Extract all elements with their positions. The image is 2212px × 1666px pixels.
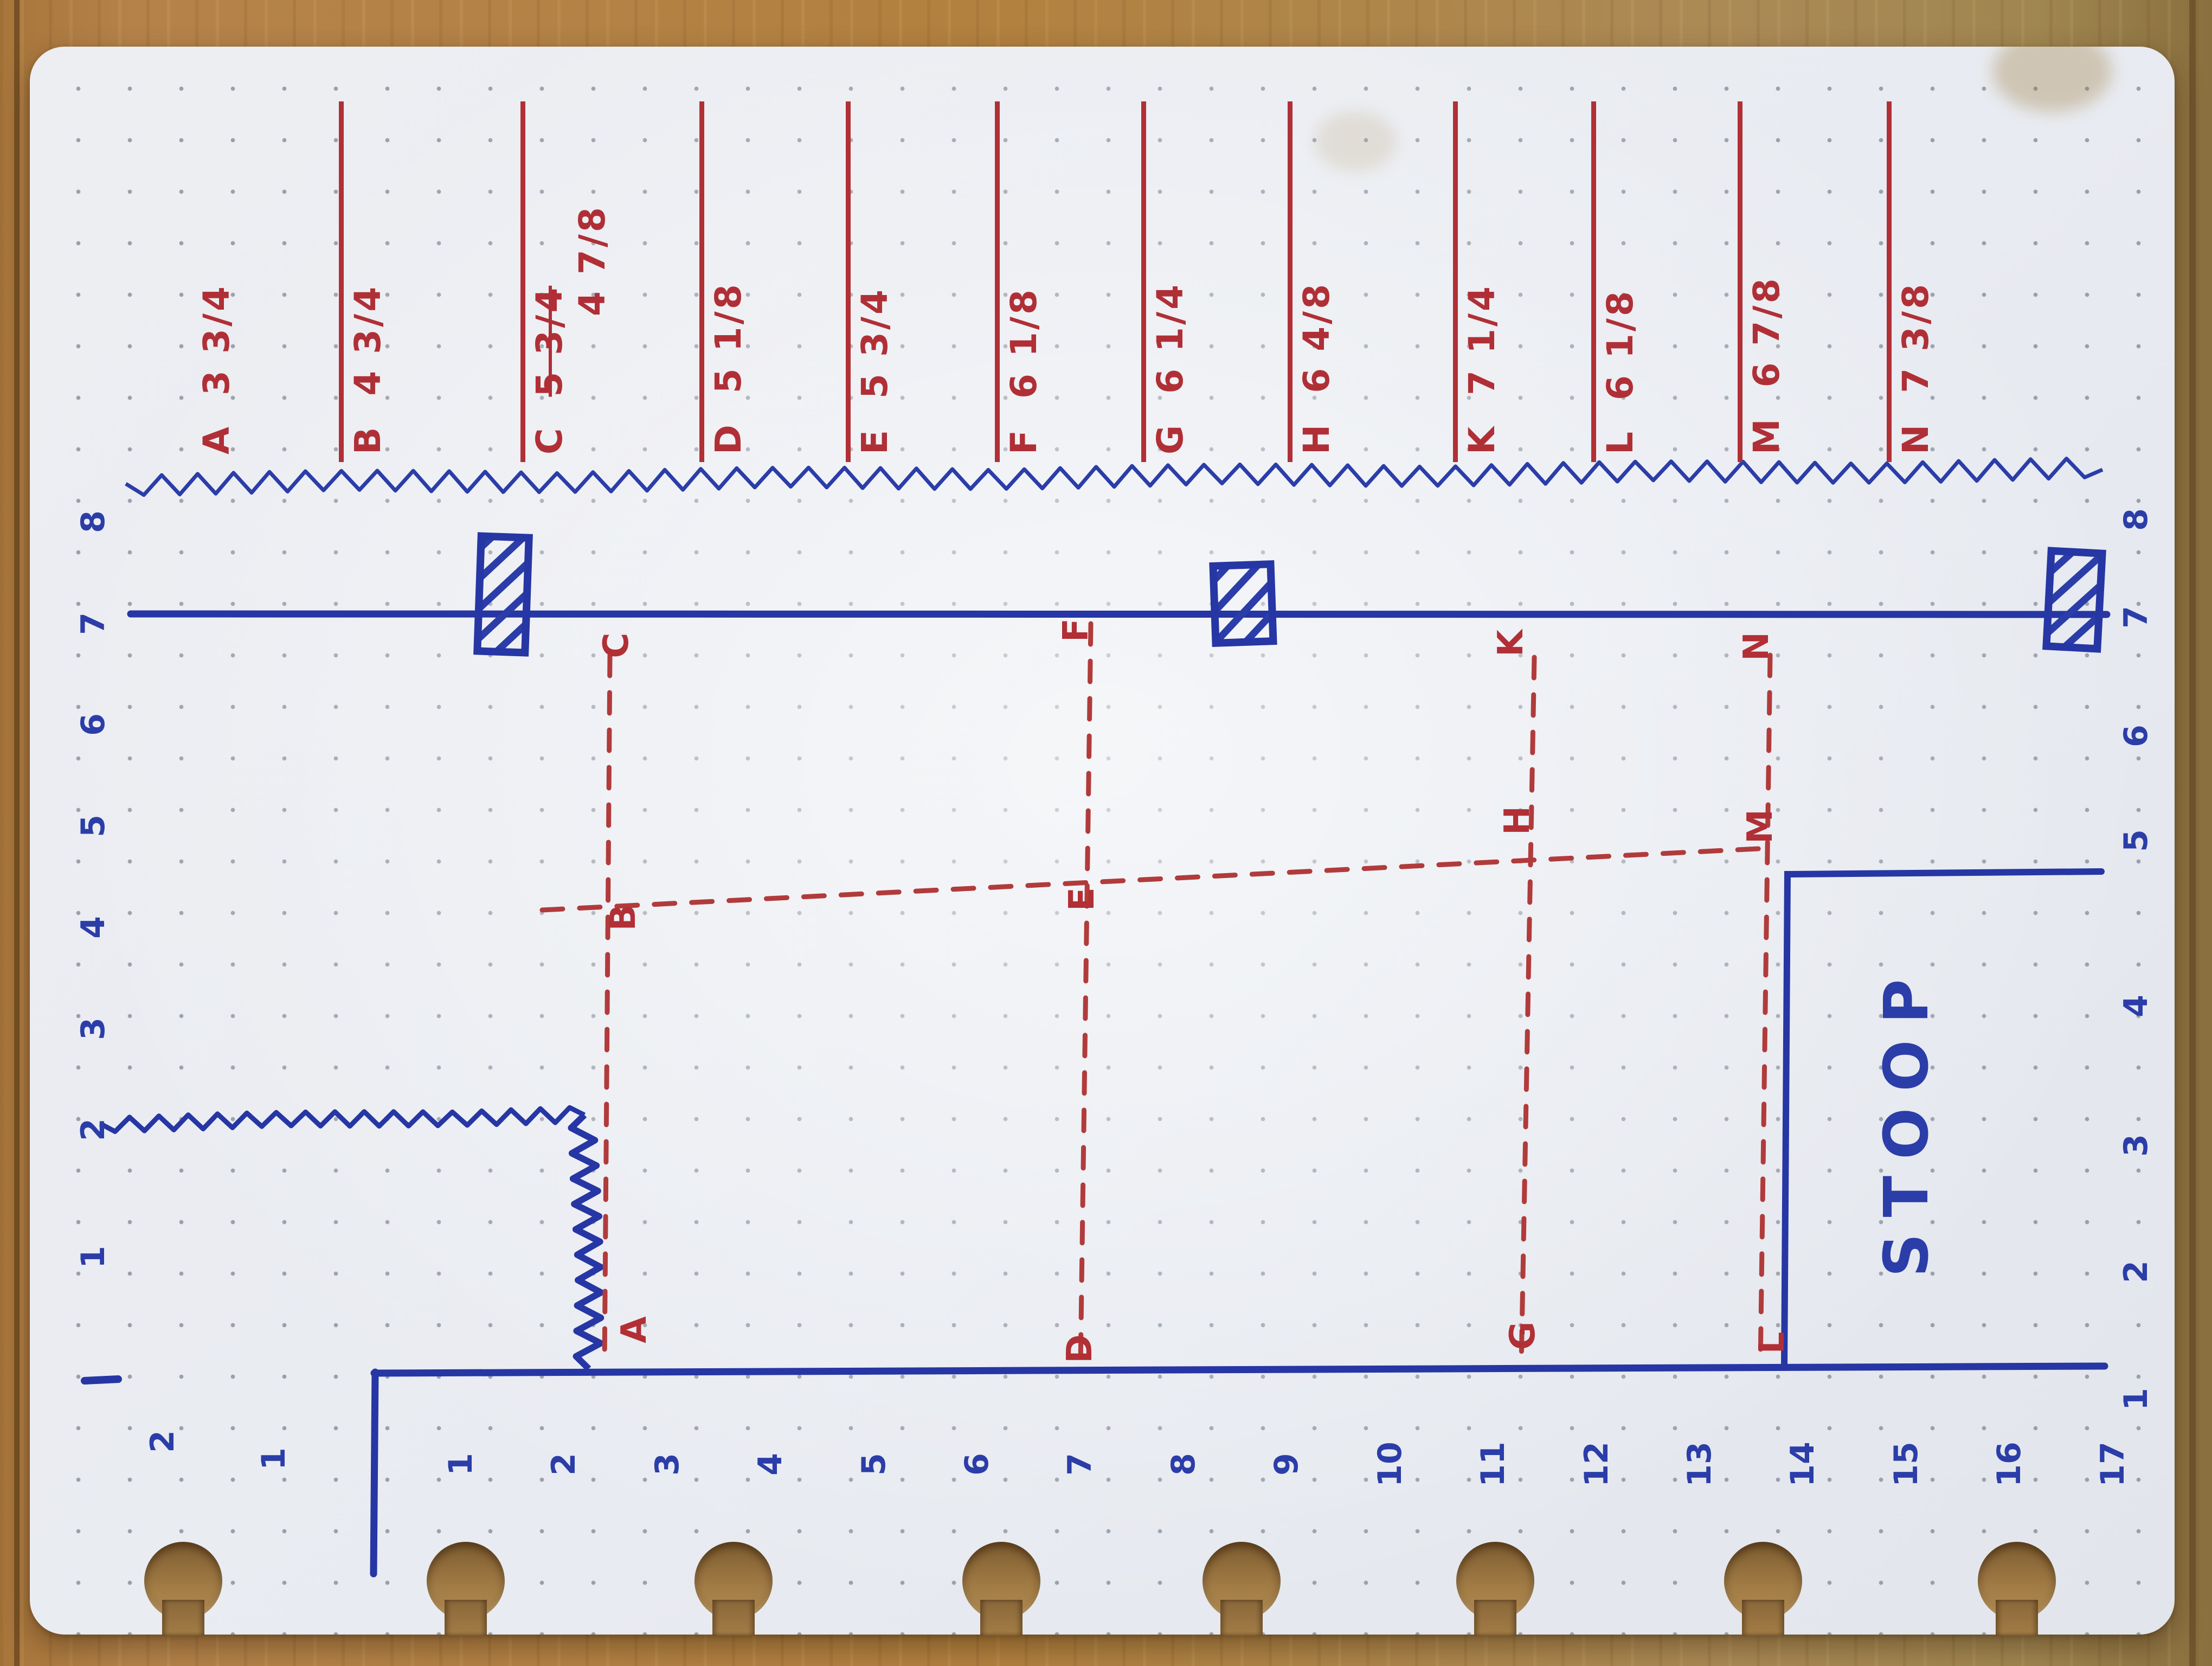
bottom-scale-6: 6 bbox=[951, 1438, 1003, 1490]
punch-slot-neck bbox=[445, 1600, 487, 1636]
bottom-scale-14: 14 bbox=[1777, 1438, 1829, 1490]
bottom-scale-2: 2 bbox=[538, 1438, 590, 1490]
measurement-F: F 6 1/8 bbox=[995, 101, 1056, 462]
left-scale-1: 1 bbox=[67, 1231, 119, 1283]
post-marker-2 bbox=[1213, 564, 1274, 643]
measurement-L: L 6 1/8 bbox=[1591, 101, 1652, 462]
bottom-scale-1: 1 bbox=[435, 1438, 487, 1490]
left-tick-mark bbox=[85, 1379, 118, 1381]
divider-squiggle-line bbox=[126, 459, 2102, 495]
bottom-scale-5: 5 bbox=[848, 1438, 900, 1490]
point-label-G: G bbox=[1500, 1313, 1546, 1359]
measurement-A: A 3 3/4 bbox=[192, 101, 253, 462]
punch-slot-neck bbox=[162, 1600, 204, 1636]
point-label-A: A bbox=[612, 1307, 657, 1353]
dashed-line-A-C bbox=[605, 655, 610, 1364]
stoop-label: STOOP bbox=[1872, 965, 1939, 1277]
step-squiggle-horizontal bbox=[100, 1107, 584, 1131]
dashed-line-G-K bbox=[1521, 657, 1534, 1364]
left-scale-3: 3 bbox=[67, 1003, 119, 1055]
point-label-K: K bbox=[1488, 620, 1534, 666]
right-scale-2: 2 bbox=[2110, 1246, 2162, 1298]
point-label-B: B bbox=[601, 895, 646, 940]
punch-slot-neck bbox=[980, 1600, 1023, 1636]
point-label-L: L bbox=[1750, 1320, 1795, 1366]
dashed-line-L-N bbox=[1760, 655, 1770, 1364]
bottom-wall-corner-stub bbox=[374, 1372, 375, 1574]
measurement-N: N 7 3/8 bbox=[1887, 101, 1947, 462]
bottom-scale-3: 3 bbox=[641, 1438, 693, 1490]
bottom-scale-13: 13 bbox=[1674, 1438, 1726, 1490]
left-scale-8: 8 bbox=[67, 496, 119, 548]
point-label-F: F bbox=[1053, 607, 1099, 653]
measurement-C: C 5 3/44 7/8 bbox=[520, 101, 612, 462]
photo-of-sketch: A 3 3/4 B 4 3/4 C 5 3/44 7/8 D 5 1/8 E 5… bbox=[0, 0, 2212, 1666]
point-label-D: D bbox=[1057, 1326, 1103, 1372]
top-wall-line bbox=[131, 614, 2107, 614]
dashed-line-D-F bbox=[1081, 624, 1091, 1364]
left-scale-2: 2 bbox=[67, 1104, 119, 1156]
measurement-B: B 4 3/4 bbox=[339, 101, 400, 462]
left-scale-5: 5 bbox=[67, 800, 119, 852]
right-scale-4: 4 bbox=[2110, 980, 2162, 1032]
bottom-wall-line bbox=[374, 1366, 2105, 1373]
measurement-E: E 5 3/4 bbox=[846, 101, 906, 462]
bottom-scale-15: 15 bbox=[1880, 1438, 1932, 1490]
bottom-scale-4: 4 bbox=[744, 1438, 796, 1490]
bottom-scale-12: 12 bbox=[1571, 1438, 1623, 1490]
right-scale-5: 5 bbox=[2110, 815, 2162, 867]
measurement-D: D 5 1/8 bbox=[699, 101, 760, 462]
post-marker-1 bbox=[477, 536, 529, 653]
punch-slot-neck bbox=[1996, 1600, 2038, 1636]
left-scale-6: 6 bbox=[67, 699, 119, 751]
bottom-scale-10: 10 bbox=[1364, 1438, 1416, 1490]
measurement-K: K 7 1/4 bbox=[1453, 101, 1514, 462]
step-squiggle-vertical bbox=[571, 1115, 601, 1369]
right-scale-1: 1 bbox=[2110, 1373, 2162, 1425]
punch-slot-neck bbox=[1742, 1600, 1784, 1636]
point-label-H: H bbox=[1495, 798, 1540, 843]
point-label-N: N bbox=[1734, 624, 1779, 669]
bottom-scale-8: 8 bbox=[1158, 1438, 1210, 1490]
bottom-left-extra-1: 1 bbox=[248, 1433, 300, 1485]
bottom-left-extra-2: 2 bbox=[137, 1415, 189, 1468]
right-scale-8: 8 bbox=[2110, 494, 2162, 546]
measurement-H: H 6 4/8 bbox=[1288, 101, 1348, 462]
bottom-scale-16: 16 bbox=[1983, 1438, 2035, 1490]
stoop-outline bbox=[1784, 872, 2101, 1368]
right-scale-3: 3 bbox=[2110, 1119, 2162, 1171]
post-marker-3 bbox=[2046, 551, 2102, 649]
sketch-ink-layer bbox=[0, 0, 2212, 1666]
measurement-M: M 6 7/8 bbox=[1738, 101, 1798, 462]
left-scale-4: 4 bbox=[67, 901, 119, 953]
punch-slot-neck bbox=[712, 1600, 755, 1636]
punch-slot-neck bbox=[1474, 1600, 1516, 1636]
left-scale-7: 7 bbox=[67, 598, 119, 650]
point-label-E: E bbox=[1059, 876, 1105, 922]
measurement-G: G 6 1/4 bbox=[1141, 101, 1202, 462]
punch-slot-neck bbox=[1220, 1600, 1263, 1636]
point-label-C: C bbox=[594, 623, 639, 668]
dashed-line-B-M bbox=[542, 848, 1769, 910]
bottom-scale-11: 11 bbox=[1467, 1438, 1519, 1490]
point-label-M: M bbox=[1738, 804, 1783, 849]
bottom-scale-7: 7 bbox=[1054, 1438, 1106, 1490]
bottom-scale-9: 9 bbox=[1261, 1438, 1313, 1490]
bottom-scale-17: 17 bbox=[2087, 1438, 2139, 1490]
right-scale-6: 6 bbox=[2110, 710, 2162, 762]
right-scale-7: 7 bbox=[2110, 591, 2162, 643]
